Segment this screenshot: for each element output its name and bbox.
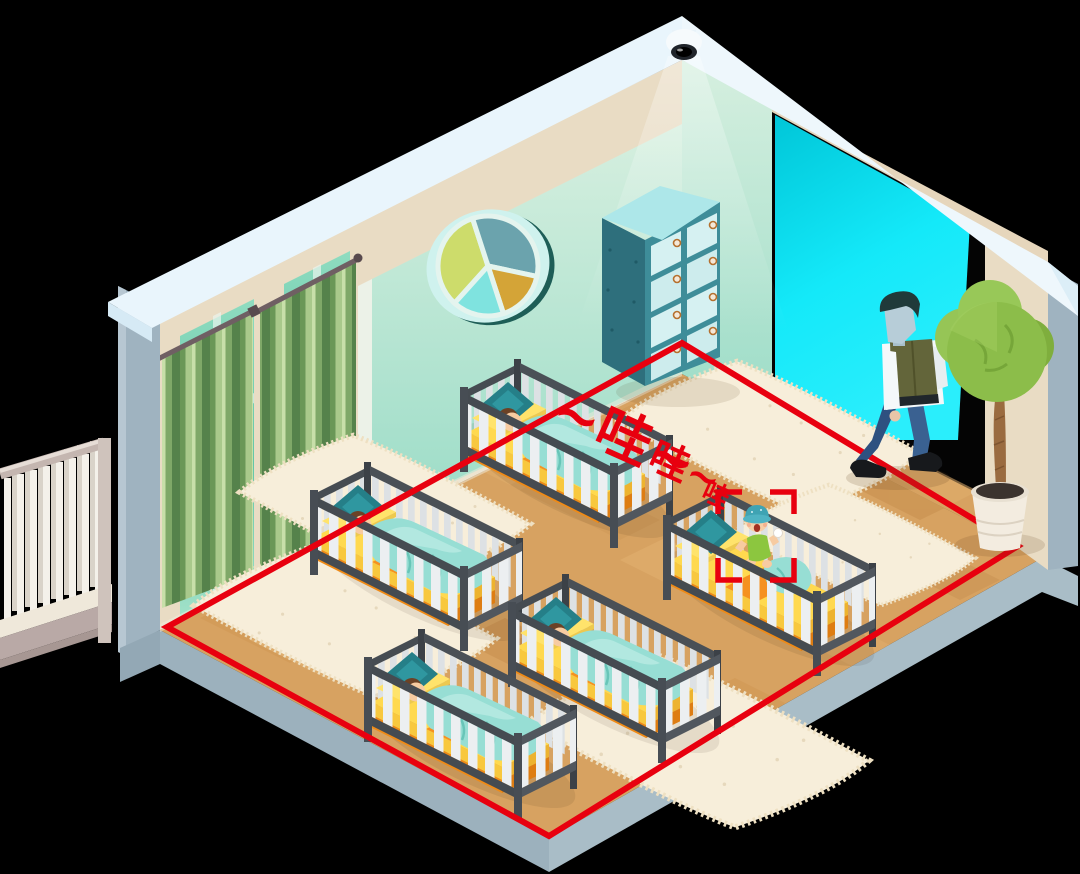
- soil: [976, 483, 1024, 499]
- hand: [890, 411, 901, 422]
- balcony-railing: [0, 438, 112, 668]
- isometric-nursery-scene: ~哇~ 哇~ 哇: [0, 0, 1080, 874]
- nursery-monitoring-illustration: ~哇~ 哇~ 哇: [0, 0, 1080, 874]
- trunk: [994, 392, 1006, 488]
- curtain-panel-left: [162, 310, 253, 608]
- pillar-edge: [1048, 268, 1078, 570]
